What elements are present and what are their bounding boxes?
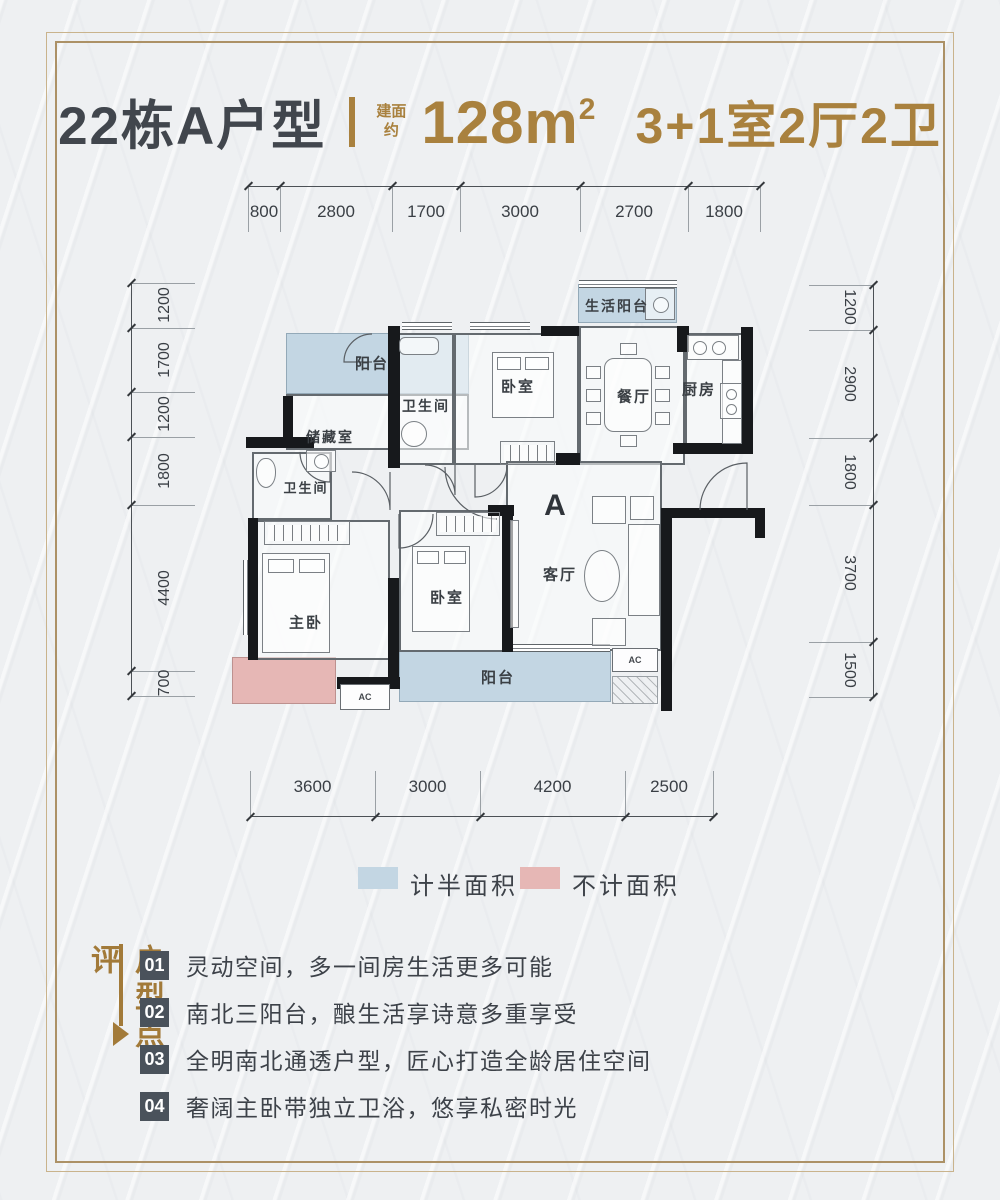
chair [586, 366, 601, 379]
toilet [256, 458, 276, 488]
bathtub [399, 337, 439, 355]
vanity [306, 450, 336, 472]
washer-drum [653, 297, 669, 313]
chair [655, 412, 670, 425]
sink-basin [693, 341, 707, 355]
legend-label-half-area: 计半面积 [410, 866, 518, 901]
master-bed [262, 553, 330, 653]
burner [726, 404, 737, 415]
ac-label: AC [359, 692, 372, 702]
review-section: 户型点评 01 灵动空间，多一间房生活更多可能 02 南北三阳台，酿生活享诗意多… [0, 930, 1000, 1150]
wardrobe [500, 441, 555, 465]
room-label-balcony-top: 阳台 [355, 353, 389, 374]
chair [586, 389, 601, 402]
wardrobe [436, 512, 500, 536]
chair [586, 412, 601, 425]
kitchen-sink-counter [687, 335, 739, 360]
review-item-text: 灵动空间，多一间房生活更多可能 [186, 948, 554, 982]
pillow [268, 559, 294, 573]
sofa [628, 524, 660, 616]
room-label-master: 主卧 [289, 612, 323, 633]
pillow [444, 551, 466, 564]
legend-swatch-half-area [358, 867, 398, 889]
review-item: 01 灵动空间，多一间房生活更多可能 [140, 948, 554, 982]
ac-unit: AC [612, 648, 658, 672]
legend-label-no-area: 不计面积 [572, 866, 680, 901]
door-arc [475, 465, 507, 497]
review-item: 03 全明南北通透户型，匠心打造全龄居住空间 [140, 1042, 652, 1076]
burner [726, 389, 737, 400]
room-label-living-balcony: 生活阳台 [585, 296, 649, 316]
chair [620, 435, 637, 447]
chair [620, 343, 637, 355]
side-table [630, 496, 654, 520]
review-title-arrow-icon [113, 1022, 129, 1046]
legend-swatch-no-area [520, 867, 560, 889]
door-arc [352, 472, 390, 510]
review-item-number: 04 [140, 1092, 169, 1121]
review-item-text: 南北三阳台，酿生活享诗意多重享受 [186, 995, 578, 1029]
sink [401, 421, 427, 447]
ac-platform-hatch [612, 676, 658, 704]
review-item-text: 奢阔主卧带独立卫浴，悠享私密时光 [186, 1089, 578, 1123]
coffee-table [584, 550, 620, 602]
door-arc [700, 463, 747, 510]
review-item-number: 01 [140, 951, 169, 980]
ac-label: AC [629, 655, 642, 665]
wardrobe [264, 521, 350, 545]
review-title-line [119, 944, 123, 1026]
door-arc [399, 514, 433, 548]
room-label-storage: 储藏室 [306, 427, 354, 447]
room-label-bedroom2: 卧室 [430, 587, 464, 608]
tv-cabinet [510, 520, 519, 628]
pillow [525, 357, 549, 370]
review-item-number: 02 [140, 998, 169, 1027]
armchair [592, 618, 626, 646]
room-label-dining: 餐厅 [617, 386, 651, 407]
room-label-bath-master: 卫生间 [283, 478, 328, 497]
ac-unit: AC [340, 684, 390, 710]
chair [655, 366, 670, 379]
review-item: 04 奢阔主卧带独立卫浴，悠享私密时光 [140, 1089, 578, 1123]
washing-machine [645, 288, 675, 320]
stove [720, 383, 742, 419]
review-item: 02 南北三阳台，酿生活享诗意多重享受 [140, 995, 578, 1029]
room-label-bath-top: 卫生间 [402, 396, 450, 416]
unit-marker-a: A [544, 489, 566, 523]
pillow [417, 551, 439, 564]
room-label-balcony-bottom: 阳台 [481, 667, 515, 688]
room-label-bedroom-top: 卧室 [501, 376, 535, 397]
armchair [592, 496, 626, 524]
room-label-living: 客厅 [543, 564, 577, 585]
review-item-text: 全明南北通透户型，匠心打造全龄居住空间 [186, 1042, 652, 1076]
sink-basin [712, 341, 726, 355]
review-item-number: 03 [140, 1045, 169, 1074]
chair [655, 389, 670, 402]
pillow [497, 357, 521, 370]
room-label-kitchen: 厨房 [682, 379, 716, 400]
sink [314, 454, 329, 469]
pillow [299, 559, 325, 573]
legend: 计半面积 不计面积 [0, 860, 1000, 900]
